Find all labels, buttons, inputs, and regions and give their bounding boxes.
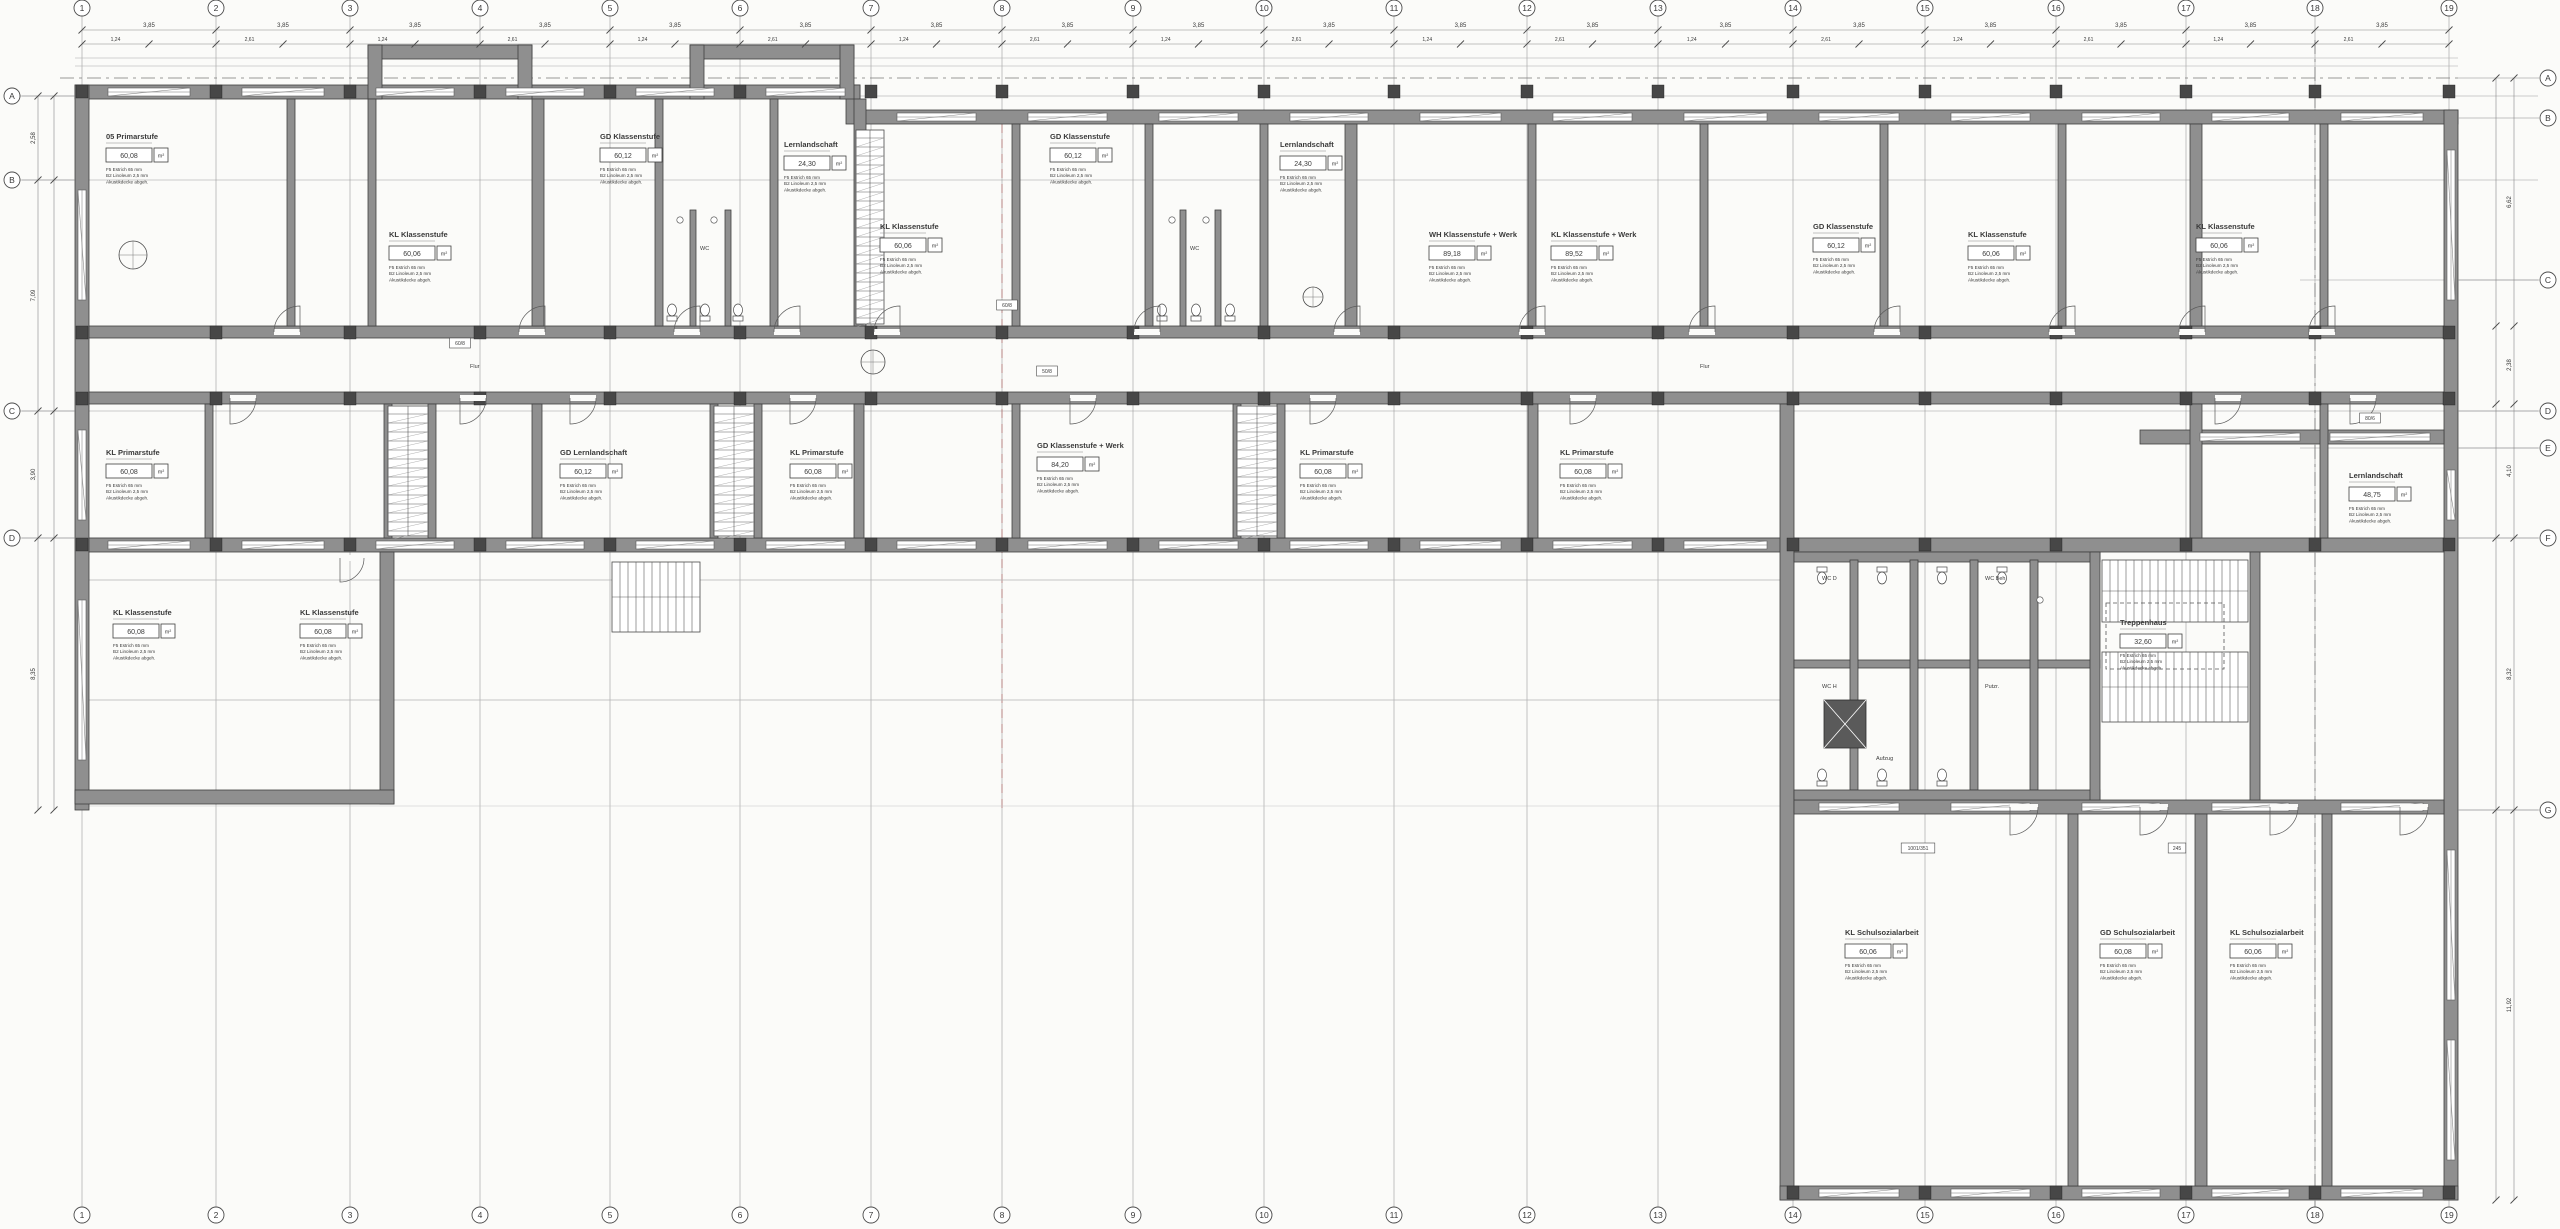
- toilet-tank: [1997, 567, 2007, 572]
- dim-value-top-inner: 1,24: [111, 37, 121, 43]
- room-divider-upper: [1528, 124, 1536, 326]
- small-room-label: WC: [1190, 246, 1199, 252]
- room-area-unit: m²: [1352, 470, 1359, 476]
- room-area-value: 60,12: [574, 469, 592, 476]
- door-gap: [1874, 329, 1900, 335]
- dim-value-top-inner: 2,61: [2084, 37, 2094, 43]
- column: [2309, 1186, 2321, 1199]
- annex-wall-right: [380, 552, 394, 804]
- grid-bubble-label: 3: [348, 3, 353, 13]
- column: [1787, 392, 1799, 405]
- grid-bubble-label: 3: [348, 1210, 353, 1220]
- grid-bubble-label: D: [9, 533, 15, 543]
- dim-value-right: 6,62: [2507, 196, 2513, 208]
- room-note-line: B2 Linoleum 2,5 mm: [300, 649, 342, 654]
- room-note-line: F5 Estrich 65 mm: [600, 167, 636, 172]
- room-note-line: B2 Linoleum 2,5 mm: [880, 263, 922, 268]
- door-gap: [1310, 395, 1336, 401]
- room-note-line: Akustikdecke abgeh.: [784, 187, 826, 192]
- dim-value-top: 3,85: [409, 23, 421, 29]
- room-note-line: B2 Linoleum 2,5 mm: [1050, 173, 1092, 178]
- room-title: GD Klassenstufe: [1813, 222, 1873, 231]
- grid-bubble-label: 5: [608, 1210, 613, 1220]
- room-note-line: Akustikdecke abgeh.: [1813, 269, 1855, 274]
- room-note-line: B2 Linoleum 2,5 mm: [2196, 263, 2238, 268]
- room-note-line: F5 Estrich 65 mm: [106, 483, 142, 488]
- column: [1652, 392, 1664, 405]
- dim-value-top-inner: 1,24: [378, 37, 388, 43]
- room-area-unit: m²: [2172, 640, 2179, 646]
- grid-bubble-label: 8: [1000, 1210, 1005, 1220]
- door-gap: [1570, 395, 1596, 401]
- grid-bubble-label: 11: [1390, 3, 1399, 13]
- column: [344, 538, 356, 551]
- wc-cell-wall: [2030, 560, 2038, 790]
- room-area-unit: m²: [612, 470, 619, 476]
- room-area-value: 60,08: [120, 469, 138, 476]
- dim-value-top: 3,85: [2115, 23, 2127, 29]
- room-note-line: F5 Estrich 65 mm: [1560, 483, 1596, 488]
- column: [2180, 1186, 2192, 1199]
- column: [604, 85, 616, 98]
- room-area-value: 24,30: [1294, 161, 1312, 168]
- room-note-line: Akustikdecke abgeh.: [1429, 277, 1471, 282]
- dim-value-left: 3,90: [31, 468, 37, 480]
- room-title: GD Schulsozialarbeit: [2100, 928, 2176, 937]
- room-area-unit: m²: [836, 162, 843, 168]
- toilet-tank: [1877, 781, 1887, 786]
- room-note-line: Akustikdecke abgeh.: [560, 495, 602, 500]
- door-gap: [570, 395, 596, 401]
- room-note-line: B2 Linoleum 2,5 mm: [1037, 482, 1079, 487]
- room-area-value: 60,12: [614, 153, 632, 160]
- room-title: GD Lernlandschaft: [560, 448, 628, 457]
- room-area-unit: m²: [2020, 252, 2027, 258]
- room-area-unit: m²: [1102, 154, 1109, 160]
- door-gap: [2140, 804, 2168, 810]
- dim-value-top: 3,85: [539, 23, 551, 29]
- toilet-icon: [667, 304, 677, 321]
- dim-value-top: 3,85: [1587, 23, 1599, 29]
- toilet-icon: [1877, 769, 1887, 786]
- column: [2050, 85, 2062, 98]
- bay-wall-top: [368, 45, 532, 59]
- toilet-tank: [1937, 567, 1947, 572]
- column: [2050, 538, 2062, 551]
- grid-bubble-label: 13: [1653, 1210, 1663, 1220]
- room-area-unit: m²: [1612, 470, 1619, 476]
- column: [1919, 1186, 1931, 1199]
- column: [2309, 85, 2321, 98]
- room-note-line: B2 Linoleum 2,5 mm: [1813, 263, 1855, 268]
- grid-bubble-label: 1: [80, 1210, 85, 1220]
- column: [210, 326, 222, 339]
- room-divider-upper: [770, 99, 778, 326]
- column: [865, 85, 877, 98]
- room-note-line: B2 Linoleum 2,5 mm: [1560, 489, 1602, 494]
- dim-value-top: 3,85: [277, 23, 289, 29]
- stair-wall: [2250, 552, 2260, 800]
- grid-bubble-label: 10: [1259, 3, 1269, 13]
- room-note-line: Akustikdecke abgeh.: [880, 269, 922, 274]
- room-area-value: 60,06: [894, 243, 912, 250]
- room-note-line: Akustikdecke abgeh.: [790, 495, 832, 500]
- column: [1919, 538, 1931, 551]
- room-area-value: 60,08: [1574, 469, 1592, 476]
- room-area-value: 48,75: [2363, 492, 2381, 499]
- dim-value-top-inner: 2,61: [508, 37, 518, 43]
- grid-bubble-label: 19: [2444, 3, 2454, 13]
- small-room-label: WC: [700, 246, 709, 252]
- dim-value-left: 2,58: [31, 132, 37, 144]
- column: [1258, 538, 1270, 551]
- column: [734, 85, 746, 98]
- small-room-label: Aufzug: [1876, 756, 1893, 762]
- room-area-value: 60,08: [1314, 469, 1332, 476]
- grid-bubble-label: A: [9, 91, 15, 101]
- column: [2443, 1186, 2455, 1199]
- door-gap: [2350, 395, 2376, 401]
- wc-cell-wall: [690, 210, 696, 326]
- dim-value-top: 3,85: [669, 23, 681, 29]
- room-title: KL Klassenstufe + Werk: [1551, 230, 1637, 239]
- grid-bubble-label: 10: [1259, 1210, 1269, 1220]
- column: [1258, 392, 1270, 405]
- room-divider-upper: [1700, 124, 1708, 326]
- room-area-value: 60,12: [1064, 153, 1082, 160]
- dim-value-top: 3,85: [931, 23, 943, 29]
- core-wall: [1794, 660, 2100, 668]
- column: [1521, 392, 1533, 405]
- room-area-value: 60,08: [2114, 949, 2132, 956]
- room-note-line: Akustikdecke abgeh.: [1037, 488, 1079, 493]
- toilet-bowl: [701, 304, 710, 316]
- dim-value-top-inner: 2,61: [1292, 37, 1302, 43]
- dim-value-top: 3,85: [2376, 23, 2388, 29]
- grid-bubble-label: 8: [1000, 3, 1005, 13]
- column: [2180, 392, 2192, 405]
- room-area-unit: m²: [1481, 252, 1488, 258]
- grid-bubble-label: 12: [1522, 1210, 1532, 1220]
- column: [1919, 326, 1931, 339]
- column: [2180, 538, 2192, 551]
- room-area-unit: m²: [1603, 252, 1610, 258]
- door-gap: [230, 395, 256, 401]
- room-note-line: F5 Estrich 65 mm: [2349, 506, 2385, 511]
- column: [76, 85, 88, 98]
- door-gap: [874, 329, 900, 335]
- toilet-icon: [1157, 304, 1167, 321]
- room-divider-middle: [1277, 404, 1285, 538]
- room-title: Treppenhaus: [2120, 618, 2167, 627]
- room-title: GD Klassenstufe: [600, 132, 660, 141]
- room-area-value: 89,18: [1443, 251, 1461, 258]
- room-divider-middle: [428, 404, 436, 538]
- small-room-label: WC D: [1822, 576, 1837, 582]
- room-divider-middle: [1012, 404, 1020, 538]
- room-note-line: F5 Estrich 65 mm: [1037, 476, 1073, 481]
- room-divider-middle: [205, 404, 213, 538]
- toilet-tank: [1877, 567, 1887, 572]
- room-note-line: B2 Linoleum 2,5 mm: [1968, 271, 2010, 276]
- grid-bubble-label: B: [9, 175, 15, 185]
- grid-bubble-label: 9: [1131, 1210, 1136, 1220]
- grid-bubble-label: 9: [1131, 3, 1136, 13]
- dim-value-top: 3,85: [800, 23, 812, 29]
- room-area-value: 60,08: [804, 469, 822, 476]
- toilet-tank: [1225, 316, 1235, 321]
- room-note-line: F5 Estrich 65 mm: [1280, 175, 1316, 180]
- grid-bubble-label: A: [2545, 73, 2551, 83]
- column: [996, 392, 1008, 405]
- room-note-line: B2 Linoleum 2,5 mm: [106, 173, 148, 178]
- room-title: WH Klassenstufe + Werk: [1429, 230, 1518, 239]
- room-note-line: Akustikdecke abgeh.: [113, 655, 155, 660]
- door-gap: [2179, 329, 2205, 335]
- room-note-line: F5 Estrich 65 mm: [1813, 257, 1849, 262]
- room-note-line: F5 Estrich 65 mm: [1845, 963, 1881, 968]
- room-divider-upper: [1145, 124, 1153, 326]
- grid-bubble-label: 15: [1920, 1210, 1930, 1220]
- room-divider-upper: [2058, 124, 2066, 326]
- grid-bubble-label: F: [2545, 533, 2550, 543]
- sink-icon: [2037, 597, 2043, 603]
- room-area-unit: m²: [652, 154, 659, 160]
- dim-value-top-inner: 2,61: [1821, 37, 1831, 43]
- wall-tag-text: 1001/351: [1908, 846, 1929, 852]
- room-area-unit: m²: [441, 252, 448, 258]
- toilet-bowl: [1878, 769, 1887, 781]
- sink-icon: [1169, 217, 1175, 223]
- room-area-unit: m²: [1089, 463, 1096, 469]
- toilet-bowl: [734, 304, 743, 316]
- toilet-bowl: [1226, 304, 1235, 316]
- small-room-label: WC H: [1822, 684, 1837, 690]
- toilet-tank: [733, 316, 743, 321]
- sink-icon: [711, 217, 717, 223]
- room-note-line: B2 Linoleum 2,5 mm: [1845, 969, 1887, 974]
- grid-bubble-label: 14: [1788, 1210, 1798, 1220]
- room-note-line: B2 Linoleum 2,5 mm: [113, 649, 155, 654]
- floorplan-canvas: 1122334455667788991010111112121313141415…: [0, 0, 2560, 1229]
- dim-value-top-inner: 1,24: [1953, 37, 1963, 43]
- grid-bubble-label: 11: [1390, 1210, 1399, 1220]
- grid-bubble-label: C: [2545, 275, 2551, 285]
- small-room-label: Putzr.: [1985, 684, 2000, 690]
- door-gap: [1134, 329, 1160, 335]
- room-divider-upper: [1345, 124, 1357, 326]
- wall-tag-text: 60/8: [1002, 303, 1012, 309]
- room-note-line: B2 Linoleum 2,5 mm: [600, 173, 642, 178]
- column: [1787, 1186, 1799, 1199]
- room-note-line: B2 Linoleum 2,5 mm: [2100, 969, 2142, 974]
- small-room-label: Flur: [1700, 364, 1710, 370]
- wing-wall-left: [1780, 404, 1794, 1200]
- room-area-unit: m²: [2282, 950, 2289, 956]
- column: [996, 538, 1008, 551]
- wall-tag-text: 50/8: [1042, 369, 1052, 375]
- column: [1787, 538, 1799, 551]
- dim-value-top: 3,85: [1193, 23, 1205, 29]
- room-area-unit: m²: [2401, 493, 2408, 499]
- column: [2050, 392, 2062, 405]
- column: [604, 326, 616, 339]
- column: [734, 538, 746, 551]
- door-gap: [1070, 395, 1096, 401]
- dim-value-top-inner: 2,61: [1030, 37, 1040, 43]
- room-note-line: Akustikdecke abgeh.: [2120, 665, 2162, 670]
- room-note-line: Akustikdecke abgeh.: [2230, 975, 2272, 980]
- toilet-tank: [1937, 781, 1947, 786]
- dim-value-top-inner: 1,24: [1687, 37, 1697, 43]
- toilet-tank: [667, 316, 677, 321]
- wing-room-divider: [2322, 814, 2332, 1186]
- column: [76, 538, 88, 551]
- room-area-unit: m²: [165, 630, 172, 636]
- door-gap: [2010, 804, 2038, 810]
- grid-bubble-label: B: [2545, 113, 2551, 123]
- dim-value-top-inner: 2,61: [245, 37, 255, 43]
- room-note-line: Akustikdecke abgeh.: [1551, 277, 1593, 282]
- room-divider-middle: [532, 404, 542, 538]
- toilet-icon: [1937, 567, 1947, 584]
- column: [344, 326, 356, 339]
- room-note-line: F5 Estrich 65 mm: [1968, 265, 2004, 270]
- toilet-icon: [1225, 304, 1235, 321]
- toilet-bowl: [1938, 572, 1947, 584]
- toilet-bowl: [668, 304, 677, 316]
- toilet-bowl: [1938, 769, 1947, 781]
- column: [1919, 85, 1931, 98]
- wall-tag-text: 80/6: [2365, 416, 2375, 422]
- door-gap: [2049, 329, 2075, 335]
- sink-icon: [1203, 217, 1209, 223]
- room-note-line: B2 Linoleum 2,5 mm: [2120, 659, 2162, 664]
- room-title: KL Klassenstufe: [113, 608, 172, 617]
- column: [1919, 392, 1931, 405]
- room-note-line: F5 Estrich 65 mm: [560, 483, 596, 488]
- room-divider-upper: [287, 99, 295, 326]
- column: [2050, 1186, 2062, 1199]
- grid-bubble-label: 19: [2444, 1210, 2454, 1220]
- room-note-line: F5 Estrich 65 mm: [1300, 483, 1336, 488]
- room-note-line: Akustikdecke abgeh.: [1968, 277, 2010, 282]
- column: [1127, 85, 1139, 98]
- dim-value-top: 3,85: [143, 23, 155, 29]
- grid-bubble-label: E: [2545, 443, 2551, 453]
- column: [996, 326, 1008, 339]
- door-gap: [790, 395, 816, 401]
- room-area-value: 89,52: [1565, 251, 1583, 258]
- room-area-unit: m²: [2248, 244, 2255, 250]
- core-wall: [1794, 790, 2100, 800]
- dim-value-top-inner: 1,24: [1422, 37, 1432, 43]
- dim-value-top-inner: 1,24: [638, 37, 648, 43]
- column: [734, 326, 746, 339]
- dim-value-right: 2,38: [2507, 359, 2513, 371]
- room-title: KL Primarstufe: [1560, 448, 1614, 457]
- column: [865, 392, 877, 405]
- dim-value-right: 4,10: [2507, 465, 2513, 477]
- column: [1652, 326, 1664, 339]
- column: [1521, 85, 1533, 98]
- room-note-line: Akustikdecke abgeh.: [1050, 179, 1092, 184]
- room-divider-middle: [1528, 404, 1538, 538]
- room-area-unit: m²: [932, 244, 939, 250]
- column: [1258, 326, 1270, 339]
- toilet-tank: [1191, 316, 1201, 321]
- grid-bubble-label: 17: [2181, 3, 2191, 13]
- column: [1388, 538, 1400, 551]
- column: [1388, 326, 1400, 339]
- toilet-tank: [1817, 781, 1827, 786]
- grid-bubble-label: 15: [1920, 3, 1930, 13]
- column: [76, 392, 88, 405]
- door-gap: [2400, 804, 2428, 810]
- column: [996, 85, 1008, 98]
- room-title: KL Klassenstufe: [1968, 230, 2027, 239]
- grid-bubble-label: 18: [2310, 3, 2320, 13]
- door-gap: [274, 329, 300, 335]
- column: [2443, 326, 2455, 339]
- room-title: KL Klassenstufe: [880, 222, 939, 231]
- room-note-line: F5 Estrich 65 mm: [880, 257, 916, 262]
- room-note-line: F5 Estrich 65 mm: [1429, 265, 1465, 270]
- door-gap: [1519, 329, 1545, 335]
- toilet-icon: [1937, 769, 1947, 786]
- grid-bubble-label: 6: [738, 3, 743, 13]
- door-gap: [460, 395, 486, 401]
- room-note-line: Akustikdecke abgeh.: [2196, 269, 2238, 274]
- grid-bubble-label: 2: [214, 3, 219, 13]
- grid-bubble-label: 16: [2051, 3, 2061, 13]
- room-note-line: F5 Estrich 65 mm: [300, 643, 336, 648]
- dim-value-right: 11,92: [2507, 997, 2513, 1012]
- room-area-unit: m²: [2152, 950, 2159, 956]
- room-note-line: B2 Linoleum 2,5 mm: [560, 489, 602, 494]
- dim-value-top-inner: 1,24: [1161, 37, 1171, 43]
- grid-bubble-label: 7: [869, 3, 874, 13]
- room-note-line: F5 Estrich 65 mm: [2120, 653, 2156, 658]
- column: [865, 538, 877, 551]
- bay-wall-top: [690, 45, 854, 59]
- room-note-line: Akustikdecke abgeh.: [300, 655, 342, 660]
- column: [1127, 538, 1139, 551]
- small-room-label: Flur: [470, 364, 480, 370]
- toilet-icon: [1191, 304, 1201, 321]
- dim-value-left: 7,09: [31, 289, 37, 301]
- room-note-line: B2 Linoleum 2,5 mm: [1551, 271, 1593, 276]
- room-note-line: B2 Linoleum 2,5 mm: [389, 271, 431, 276]
- room-title: Lernlandschaft: [784, 140, 838, 149]
- room-divider-upper: [1012, 124, 1020, 326]
- grid-bubble-label: 12: [1522, 3, 1532, 13]
- room-note-line: F5 Estrich 65 mm: [784, 175, 820, 180]
- door-gap: [774, 329, 800, 335]
- column: [474, 85, 486, 98]
- grid-bubble-label: 4: [478, 1210, 483, 1220]
- grid-bubble-label: G: [2545, 805, 2552, 815]
- room-title: KL Primarstufe: [790, 448, 844, 457]
- room-title: Lernlandschaft: [1280, 140, 1334, 149]
- column: [1258, 85, 1270, 98]
- room-divider-middle: [854, 404, 864, 538]
- room-note-line: Akustikdecke abgeh.: [2100, 975, 2142, 980]
- room-area-value: 60,12: [1827, 243, 1845, 250]
- column: [344, 85, 356, 98]
- room-area-value: 60,06: [1859, 949, 1877, 956]
- grid-bubble-label: 1: [80, 3, 85, 13]
